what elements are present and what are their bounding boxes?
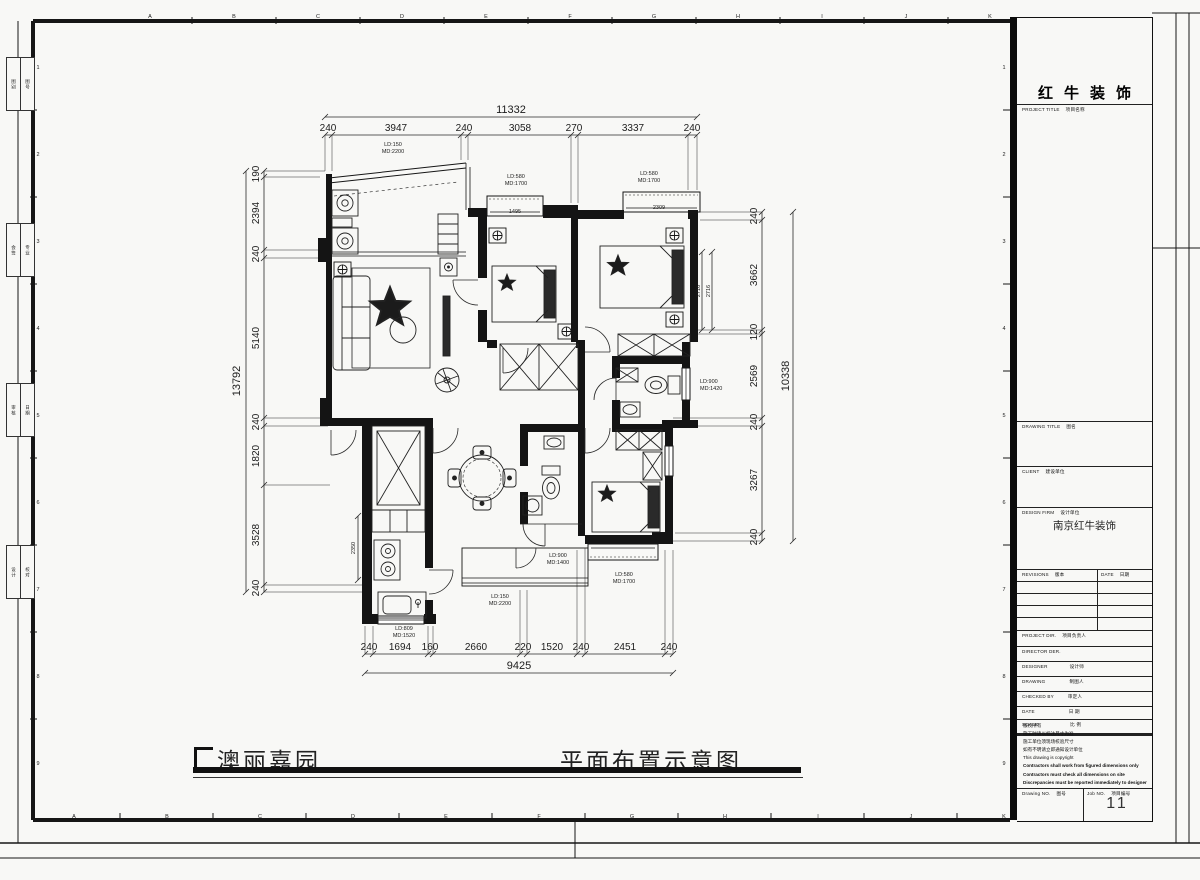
margin-cell: 审核 (6, 383, 21, 437)
dimension-text-bottom: 9425 240 1694 160 2660 220 1520 240 2451… (361, 642, 678, 672)
margin-cell: 会签 (6, 223, 21, 277)
svg-text:MD:1420: MD:1420 (700, 386, 722, 392)
svg-text:1495: 1495 (509, 209, 521, 215)
svg-text:9: 9 (36, 761, 39, 767)
svg-text:2716: 2716 (696, 285, 702, 297)
svg-text:LD:900: LD:900 (700, 379, 718, 385)
svg-text:K: K (988, 14, 992, 20)
floor-drain (334, 262, 351, 277)
svg-text:9: 9 (1002, 761, 1005, 767)
svg-text:MD:1520: MD:1520 (393, 633, 415, 639)
svg-text:H: H (736, 14, 740, 20)
svg-text:3662: 3662 (749, 263, 760, 286)
svg-text:2: 2 (1002, 152, 1005, 158)
svg-text:5: 5 (36, 413, 39, 419)
svg-text:MD:1700: MD:1700 (505, 181, 527, 187)
svg-text:160: 160 (422, 642, 439, 653)
checked-by-label: CHECKED BY审定人 (1022, 694, 1082, 700)
bed-3 (592, 482, 660, 532)
plant (370, 287, 410, 325)
svg-text:7: 7 (36, 587, 39, 593)
project-title-label: PROJECT TITLE项目名称 (1022, 107, 1085, 113)
svg-text:LD:809: LD:809 (395, 626, 413, 632)
design-firm-label: DESIGN FIRM设计单位 (1022, 510, 1080, 516)
svg-text:2716: 2716 (706, 285, 712, 297)
margin-box-group: 图别 图号 (7, 57, 35, 111)
plan-labels: LD:150 MD:2200 LD:580 MD:1700 LD:580 MD:… (351, 142, 722, 639)
kitchen (372, 510, 426, 618)
svg-text:3528: 3528 (251, 523, 262, 546)
drawing-sheet: AB CD EF GH IJ K AB CD EF GH IJ K 12 34 … (0, 0, 1200, 880)
dimension-text-top: 11332 240 3947 240 3058 270 3337 240 (320, 104, 701, 134)
date2-label: DATE日 期 (1022, 709, 1080, 715)
svg-text:A: A (72, 814, 76, 820)
svg-text:3: 3 (1002, 239, 1005, 245)
margin-box-group: 设计 校对 (7, 545, 35, 599)
footer-title-bar (193, 767, 801, 773)
elevator-shaft (372, 426, 425, 510)
nightstand (666, 228, 683, 243)
svg-text:2309: 2309 (653, 205, 665, 211)
svg-text:6: 6 (36, 500, 39, 506)
svg-text:D: D (400, 14, 404, 20)
svg-text:1694: 1694 (389, 642, 412, 653)
grid-numbers-left: 12 34 56 78 9 (36, 65, 39, 767)
svg-text:K: K (1002, 814, 1006, 820)
svg-text:8: 8 (1002, 674, 1005, 680)
svg-text:1520: 1520 (541, 642, 564, 653)
svg-text:11332: 11332 (496, 104, 526, 116)
furniture (332, 190, 690, 618)
dining-table (448, 446, 516, 510)
sofa (333, 276, 370, 370)
title-block: 红牛装饰 PROJECT TITLE项目名称 DRAWING TITLE图名 C… (1017, 17, 1153, 822)
svg-text:1: 1 (1002, 65, 1005, 71)
svg-text:C: C (316, 14, 320, 20)
svg-text:120: 120 (749, 323, 760, 340)
designer-label: DESIGNER设计师 (1022, 664, 1084, 670)
margin-cell: 校对 (20, 545, 35, 599)
job-no-value: 11 (1083, 795, 1152, 813)
svg-text:J: J (905, 14, 908, 20)
svg-text:MD:1400: MD:1400 (547, 560, 569, 566)
svg-text:13792: 13792 (231, 366, 243, 397)
svg-text:E: E (484, 14, 488, 20)
drawing-title-label: DRAWING TITLE图名 (1022, 424, 1076, 430)
design-firm-value: 南京红牛装饰 (1017, 518, 1152, 533)
svg-text:1820: 1820 (251, 444, 262, 467)
svg-text:7: 7 (1002, 587, 1005, 593)
svg-text:LD:580: LD:580 (615, 572, 633, 578)
svg-text:240: 240 (251, 245, 262, 262)
footer-title-underline (193, 777, 803, 778)
dimension-text-right: 10338 240 3662 120 2569 240 3267 240 (749, 207, 792, 545)
bathroom-1 (616, 368, 680, 417)
svg-text:2: 2 (36, 152, 39, 158)
director-label: DIRECTOR DER. (1022, 649, 1061, 654)
svg-text:A: A (148, 14, 152, 20)
stool (390, 317, 416, 343)
svg-text:220: 220 (515, 642, 532, 653)
svg-text:240: 240 (749, 207, 760, 224)
svg-text:240: 240 (361, 642, 378, 653)
svg-text:240: 240 (684, 123, 701, 134)
bed-2 (492, 266, 556, 322)
svg-text:4: 4 (1002, 326, 1005, 332)
nightstand (666, 312, 683, 327)
svg-text:G: G (630, 814, 634, 820)
drawing-label: DRAWING制图人 (1022, 679, 1084, 685)
svg-text:3947: 3947 (385, 123, 408, 134)
svg-text:LD:580: LD:580 (640, 171, 658, 177)
bed-master (600, 246, 684, 308)
svg-text:3058: 3058 (509, 123, 532, 134)
svg-text:5: 5 (1002, 413, 1005, 419)
svg-text:B: B (232, 14, 236, 20)
svg-text:2660: 2660 (465, 642, 488, 653)
svg-text:1: 1 (36, 65, 39, 71)
client-label: CLIENT建设单位 (1022, 469, 1065, 475)
margin-box-group: 会签 专业 (7, 223, 35, 277)
tv-cabinet (438, 214, 458, 356)
svg-text:270: 270 (566, 123, 583, 134)
svg-text:3267: 3267 (749, 468, 760, 491)
svg-text:C: C (258, 814, 262, 820)
svg-text:2451: 2451 (614, 642, 637, 653)
svg-text:240: 240 (456, 123, 473, 134)
bathroom-2 (520, 436, 582, 524)
svg-text:H: H (723, 814, 727, 820)
company-name: 红牛装饰 (1017, 82, 1152, 103)
svg-text:MD:2200: MD:2200 (382, 149, 404, 155)
margin-cell: 日期 (20, 383, 35, 437)
svg-text:2569: 2569 (749, 364, 760, 387)
svg-text:9425: 9425 (507, 660, 531, 672)
copyright-notes: 版权所有 施工时请以标注尺寸为准 施工单位须现场校验尺寸 如有不明请立即通知设计… (1023, 722, 1147, 787)
windows (329, 163, 700, 624)
svg-text:G: G (652, 14, 656, 20)
svg-text:4: 4 (36, 326, 39, 332)
svg-text:240: 240 (749, 528, 760, 545)
svg-text:MD:2200: MD:2200 (489, 601, 511, 607)
hall-wardrobe (500, 344, 578, 390)
balcony-stove (332, 190, 358, 254)
svg-text:E: E (444, 814, 448, 820)
svg-text:240: 240 (251, 413, 262, 430)
margin-cell: 设计 (6, 545, 21, 599)
ceiling-fan (435, 368, 459, 392)
margin-cell: 图别 (6, 57, 21, 111)
svg-text:LD:580: LD:580 (507, 174, 525, 180)
svg-text:B: B (165, 814, 169, 820)
svg-text:5140: 5140 (251, 326, 262, 349)
svg-text:LD:900: LD:900 (549, 553, 567, 559)
svg-text:3: 3 (36, 239, 39, 245)
margin-cell: 图号 (20, 57, 35, 111)
svg-text:LD:150: LD:150 (491, 594, 509, 600)
svg-text:6: 6 (1002, 500, 1005, 506)
drawing-no-label: Drawing NO.图号 (1022, 791, 1066, 797)
revisions-label: REVISIONS版本 (1022, 572, 1064, 578)
date-label: DATE日期 (1101, 572, 1129, 578)
dresser (489, 228, 506, 243)
bed3-wardrobe (616, 430, 662, 480)
svg-text:240: 240 (749, 413, 760, 430)
walls (318, 174, 698, 624)
svg-text:2350: 2350 (351, 542, 357, 554)
dimension-chains (243, 114, 796, 676)
svg-text:240: 240 (251, 579, 262, 596)
svg-text:MD:1700: MD:1700 (638, 178, 660, 184)
master-wardrobe (618, 334, 690, 356)
dimension-text-left: 13792 190 2394 240 5140 240 1820 3528 24… (231, 165, 262, 596)
svg-text:8: 8 (36, 674, 39, 680)
svg-text:240: 240 (320, 123, 337, 134)
svg-text:J: J (910, 814, 913, 820)
margin-box-group: 审核 日期 (7, 383, 35, 437)
project-dir-label: PROJECT DIR.项目负责人 (1022, 633, 1086, 639)
svg-text:240: 240 (573, 642, 590, 653)
margin-cell: 专业 (20, 223, 35, 277)
svg-text:LD:150: LD:150 (384, 142, 402, 148)
svg-text:2394: 2394 (251, 201, 262, 224)
svg-text:10338: 10338 (780, 361, 792, 392)
svg-text:D: D (351, 814, 355, 820)
svg-text:3337: 3337 (622, 123, 645, 134)
grid-numbers-right: 12 34 56 78 9 (1002, 65, 1005, 767)
svg-text:MD:1700: MD:1700 (613, 579, 635, 585)
svg-text:240: 240 (661, 642, 678, 653)
svg-text:190: 190 (251, 165, 262, 182)
